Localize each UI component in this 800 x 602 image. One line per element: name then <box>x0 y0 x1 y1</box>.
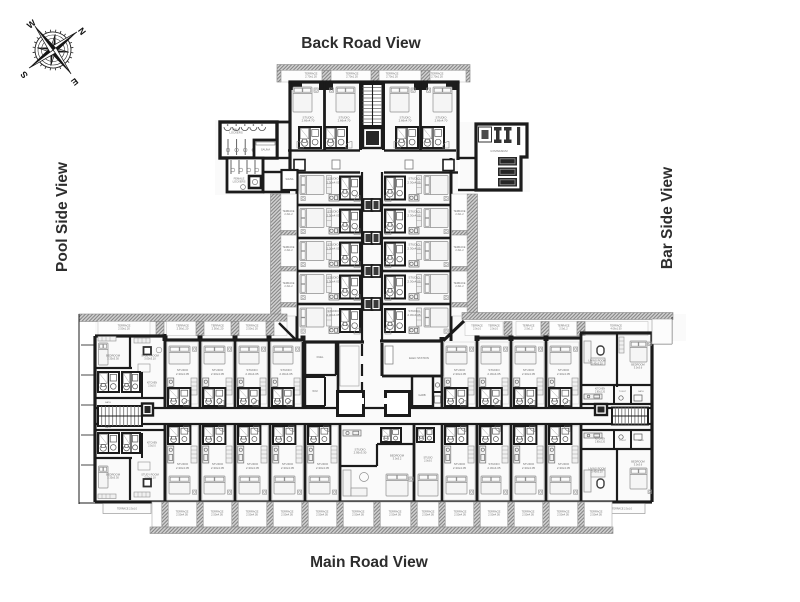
svg-text:2.66x4.70: 2.66x4.70 <box>302 119 315 123</box>
svg-text:TOILET: TOILET <box>619 391 627 393</box>
svg-text:2.30x4.05: 2.30x4.05 <box>407 246 421 250</box>
svg-text:2.5x1.2: 2.5x1.2 <box>559 328 568 331</box>
svg-text:LOCKERS: LOCKERS <box>233 180 246 184</box>
svg-text:2.70x1.20: 2.70x1.20 <box>431 75 443 79</box>
svg-text:FUEL: FUEL <box>317 355 324 359</box>
svg-text:Pool Side View: Pool Side View <box>54 161 71 272</box>
svg-text:2.30x4.05: 2.30x4.05 <box>245 372 259 376</box>
svg-text:3.0x3.6: 3.0x3.6 <box>634 463 643 467</box>
svg-text:2.50x4.05: 2.50x4.05 <box>246 513 258 517</box>
svg-text:3.35x3.30: 3.35x3.30 <box>107 476 119 480</box>
svg-text:2.30x4.05: 2.30x4.05 <box>281 466 295 470</box>
svg-text:2.30x4.05: 2.30x4.05 <box>316 466 330 470</box>
svg-text:SAUNA: SAUNA <box>286 178 294 181</box>
svg-text:TERRACE 2.5x1.0: TERRACE 2.5x1.0 <box>117 508 138 511</box>
svg-text:2.50x4.05: 2.50x4.05 <box>422 513 434 517</box>
svg-text:GARB: GARB <box>418 393 426 397</box>
svg-text:2.30x4.05: 2.30x4.05 <box>557 372 571 376</box>
svg-text:GYMNASIUM: GYMNASIUM <box>490 149 508 153</box>
svg-text:2.50x4.05: 2.50x4.05 <box>316 513 328 517</box>
svg-text:2.30x4.05: 2.30x4.05 <box>407 313 421 317</box>
svg-text:2.85x2.20: 2.85x2.20 <box>595 391 606 393</box>
svg-text:2.30x4.05: 2.30x4.05 <box>326 213 340 217</box>
svg-text:2.30x4.05: 2.30x4.05 <box>176 466 190 470</box>
svg-text:2.30x4.05: 2.30x4.05 <box>522 372 536 376</box>
svg-text:KITCHEN: KITCHEN <box>595 439 605 441</box>
svg-text:3.35x3.30: 3.35x3.30 <box>107 357 119 361</box>
svg-text:2.30x4.05: 2.30x4.05 <box>326 313 340 317</box>
svg-text:2.66x4.70: 2.66x4.70 <box>399 119 412 123</box>
svg-text:ELEC STATION: ELEC STATION <box>409 356 429 360</box>
svg-text:2.50x4.05: 2.50x4.05 <box>352 513 364 517</box>
svg-text:2.70x1.20: 2.70x1.20 <box>346 75 358 79</box>
svg-text:LOCKERS: LOCKERS <box>229 131 243 135</box>
svg-text:2.5x1.2: 2.5x1.2 <box>524 328 533 331</box>
svg-text:2.3x1.2: 2.3x1.2 <box>284 213 293 216</box>
svg-text:TERRACE 2.5x1.0: TERRACE 2.5x1.0 <box>612 508 633 511</box>
svg-text:BATH: BATH <box>638 439 644 442</box>
svg-text:2.50x4.05: 2.50x4.05 <box>281 513 293 517</box>
svg-text:2.50x4.05: 2.50x4.05 <box>389 513 401 517</box>
svg-text:2.5x2.0: 2.5x2.0 <box>148 445 156 447</box>
svg-text:2.30x4.05: 2.30x4.05 <box>453 372 467 376</box>
svg-text:2.50x4.05: 2.50x4.05 <box>590 513 602 517</box>
svg-text:2.30x4.05: 2.30x4.05 <box>211 466 225 470</box>
svg-text:2.50x4.05: 2.50x4.05 <box>522 513 534 517</box>
svg-text:BATH: BATH <box>105 426 111 429</box>
svg-text:SAUNA: SAUNA <box>261 148 270 152</box>
svg-text:2.30x4.05: 2.30x4.05 <box>487 372 501 376</box>
svg-text:2.30x4.05: 2.30x4.05 <box>407 279 421 283</box>
svg-text:4.06x1.50: 4.06x1.50 <box>611 328 623 331</box>
svg-text:KITCHEN: KITCHEN <box>147 383 157 385</box>
svg-text:2.85x2.20: 2.85x2.20 <box>595 441 606 443</box>
svg-text:2.0x1.0: 2.0x1.0 <box>490 327 499 330</box>
svg-text:W.M: W.M <box>312 389 317 393</box>
svg-text:2.3x1.2: 2.3x1.2 <box>455 285 464 288</box>
svg-text:2.50x4.05: 2.50x4.05 <box>176 513 188 517</box>
svg-text:Main Road View: Main Road View <box>310 554 429 571</box>
svg-text:2.30x4.05: 2.30x4.05 <box>557 466 571 470</box>
svg-text:2.30x4.05: 2.30x4.05 <box>326 180 340 184</box>
svg-text:2.0x1.0: 2.0x1.0 <box>473 327 482 330</box>
svg-text:2.3x1.2: 2.3x1.2 <box>455 213 464 216</box>
svg-text:BATH: BATH <box>638 390 644 393</box>
svg-text:Back Road View: Back Road View <box>301 35 421 52</box>
svg-text:2.30x4.05: 2.30x4.05 <box>176 372 190 376</box>
svg-text:2.30x4.05: 2.30x4.05 <box>326 246 340 250</box>
svg-text:2.70x1.20: 2.70x1.20 <box>305 75 317 79</box>
svg-text:2.30x4.05: 2.30x4.05 <box>407 180 421 184</box>
svg-text:2.30x4.05: 2.30x4.05 <box>279 372 293 376</box>
svg-text:3.0x3.2: 3.0x3.2 <box>393 457 402 461</box>
svg-text:2.66x4.70: 2.66x4.70 <box>338 119 351 123</box>
svg-text:2.70x1.20: 2.70x1.20 <box>386 75 398 79</box>
svg-text:2.30x4.05: 2.30x4.05 <box>326 279 340 283</box>
svg-text:KITCHEN: KITCHEN <box>147 443 157 445</box>
svg-text:2.30x4.05: 2.30x4.05 <box>407 213 421 217</box>
svg-text:2.50x4.05: 2.50x4.05 <box>211 513 223 517</box>
svg-text:2.95x3.30: 2.95x3.30 <box>354 451 367 455</box>
svg-text:2.3x1.2: 2.3x1.2 <box>455 249 464 252</box>
svg-text:2.50x4.05: 2.50x4.05 <box>454 513 466 517</box>
svg-text:2.50x1.20: 2.50x1.20 <box>212 327 224 331</box>
svg-text:2.50x1.20: 2.50x1.20 <box>118 327 130 331</box>
svg-text:3.0x3.6: 3.0x3.6 <box>634 366 643 370</box>
svg-text:KITCHEN: KITCHEN <box>595 389 605 391</box>
svg-text:2.30x4.05: 2.30x4.05 <box>246 466 260 470</box>
svg-text:2.50x1.20: 2.50x1.20 <box>177 327 189 331</box>
svg-text:2.30x4.05: 2.30x4.05 <box>211 372 225 376</box>
svg-text:2.30x4.05: 2.30x4.05 <box>487 466 501 470</box>
svg-text:BATH: BATH <box>105 401 111 404</box>
svg-text:2.3x1.2: 2.3x1.2 <box>284 285 293 288</box>
svg-text:2.50x4.05: 2.50x4.05 <box>557 513 569 517</box>
svg-text:TOILET: TOILET <box>619 440 627 442</box>
svg-text:3.45x3.20: 3.45x3.20 <box>591 470 603 474</box>
svg-text:2.30x4.05: 2.30x4.05 <box>453 466 467 470</box>
svg-text:Bar Side View: Bar Side View <box>659 166 676 269</box>
svg-text:3.00x3.10: 3.00x3.10 <box>144 357 156 361</box>
svg-text:2.30x4.05: 2.30x4.05 <box>522 466 536 470</box>
svg-text:3.45x3.20: 3.45x3.20 <box>591 362 603 366</box>
svg-text:2.50x4.05: 2.50x4.05 <box>488 513 500 517</box>
svg-text:2.66x4.70: 2.66x4.70 <box>435 119 448 123</box>
svg-text:2.0x3.0: 2.0x3.0 <box>424 459 433 462</box>
svg-text:2.50x1.20: 2.50x1.20 <box>246 327 258 331</box>
svg-text:2.5x2.0: 2.5x2.0 <box>148 385 156 387</box>
svg-text:2.3x1.2: 2.3x1.2 <box>284 249 293 252</box>
